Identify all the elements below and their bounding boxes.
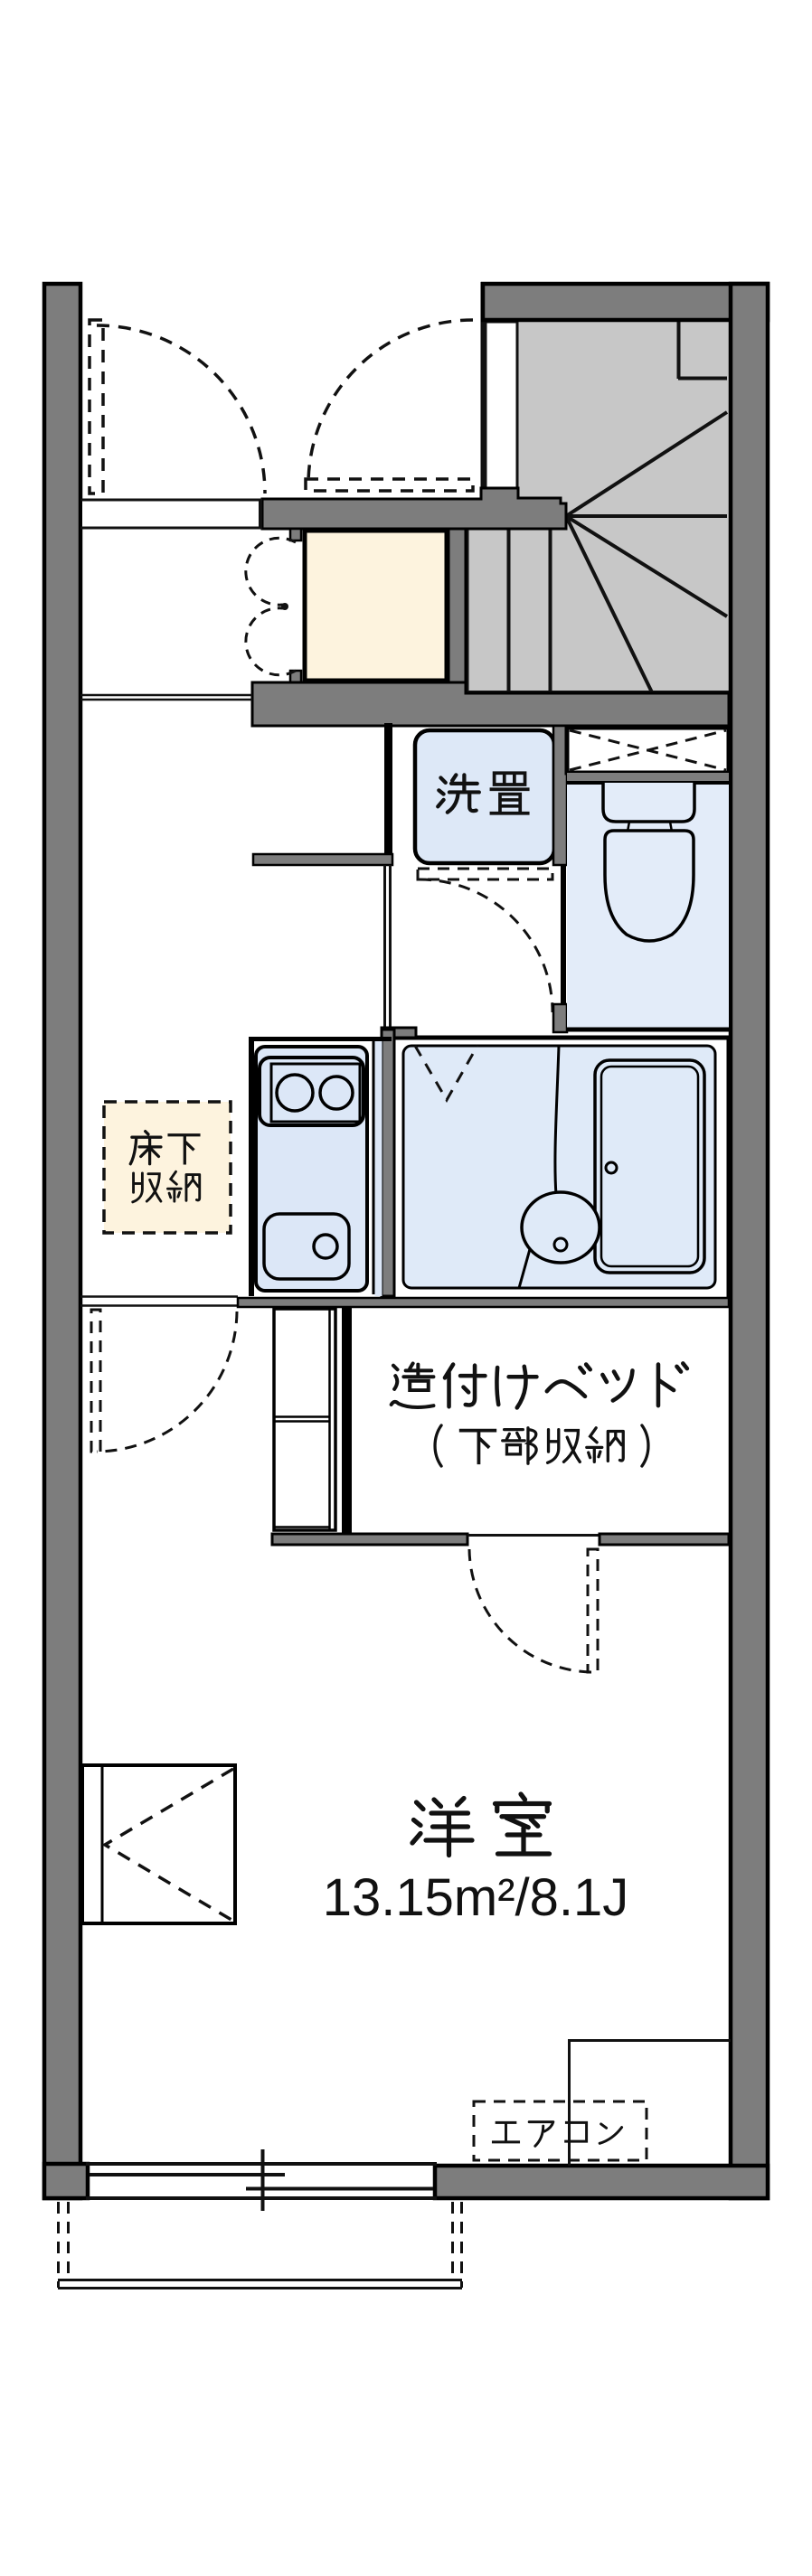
svg-text:13.15m²/8.1J: 13.15m²/8.1J [323, 1868, 629, 1927]
